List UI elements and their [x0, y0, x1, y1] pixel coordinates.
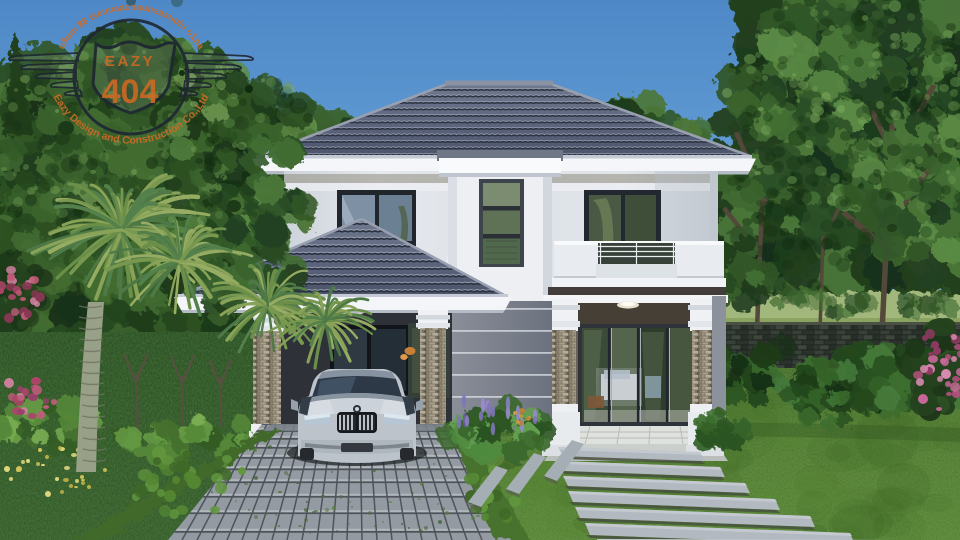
svg-text:404: 404 [102, 73, 159, 111]
svg-text:EAZY: EAZY [105, 53, 155, 70]
